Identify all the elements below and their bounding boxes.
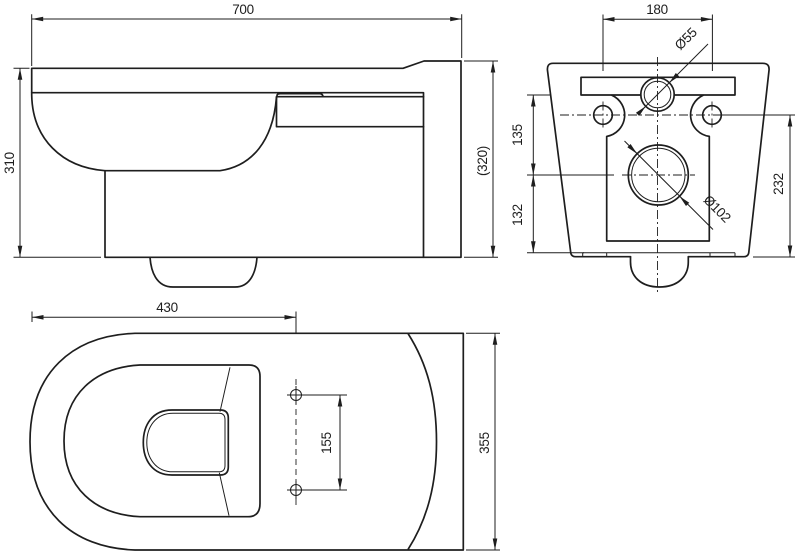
arrowhead [531, 95, 536, 107]
side-view-hinge-block [277, 97, 424, 127]
dim-d102-leader [625, 141, 714, 230]
rear-view-mounting-plate [581, 77, 735, 95]
dim-155-label: 155 [319, 432, 334, 454]
arrowhead [32, 315, 44, 320]
dim-700-label: 700 [232, 2, 254, 17]
rear-view-recess [607, 95, 710, 241]
arrowhead [701, 17, 713, 22]
arrowhead [603, 17, 615, 22]
top-view-back-curve [408, 334, 436, 549]
technical-drawing-page: 700 310 (320) [0, 0, 800, 553]
arrowhead [493, 333, 498, 345]
arrowhead [491, 246, 496, 258]
arrowhead [788, 246, 793, 258]
arrowhead [338, 395, 343, 407]
arrowhead [531, 241, 536, 253]
top-view-drain-inner [147, 413, 225, 472]
arrowhead [338, 479, 343, 491]
rear-view-outlet-bump [631, 257, 689, 287]
side-view-bowl-underside [105, 97, 277, 171]
arrowhead [491, 61, 496, 73]
arrowhead [668, 73, 679, 84]
arrowhead [678, 195, 689, 206]
dim-320-label: (320) [475, 146, 490, 176]
arrowhead [450, 17, 462, 22]
arrowhead [493, 539, 498, 551]
arrowhead [285, 315, 297, 320]
dim-310-lines [14, 68, 102, 257]
side-view-outline [32, 61, 461, 257]
top-view-bowl-rim [64, 365, 260, 517]
arrowhead [18, 68, 23, 80]
dim-700-lines [32, 14, 462, 66]
dim-430-label: 430 [156, 300, 178, 315]
toilet-dimension-drawing: 700 310 (320) [0, 0, 800, 553]
dim-135-label: 135 [510, 124, 525, 146]
top-view: 430 155 355 [30, 300, 500, 550]
dim-132-label: 132 [510, 204, 525, 226]
arrowhead [788, 115, 793, 127]
arrowhead [531, 164, 536, 176]
arrowhead [18, 246, 23, 258]
side-view-rim-line [32, 93, 424, 258]
dim-355-label: 355 [477, 432, 492, 454]
rear-view: 180 Ø55 Ø102 135 132 232 [510, 2, 795, 292]
dim-135-132-lines [527, 95, 614, 253]
dim-d55-label: Ø55 [672, 25, 700, 53]
arrowhead [531, 175, 536, 187]
arrowhead [636, 105, 647, 116]
dim-232-label: 232 [771, 173, 786, 195]
arrowhead [627, 144, 638, 155]
dim-310-label: 310 [2, 152, 17, 174]
dim-d102-label: Ø102 [701, 192, 734, 225]
dim-180-label: 180 [646, 2, 668, 17]
side-view-outlet-bump [150, 257, 257, 287]
arrowhead [32, 17, 44, 22]
side-view: 700 310 (320) [2, 2, 498, 287]
